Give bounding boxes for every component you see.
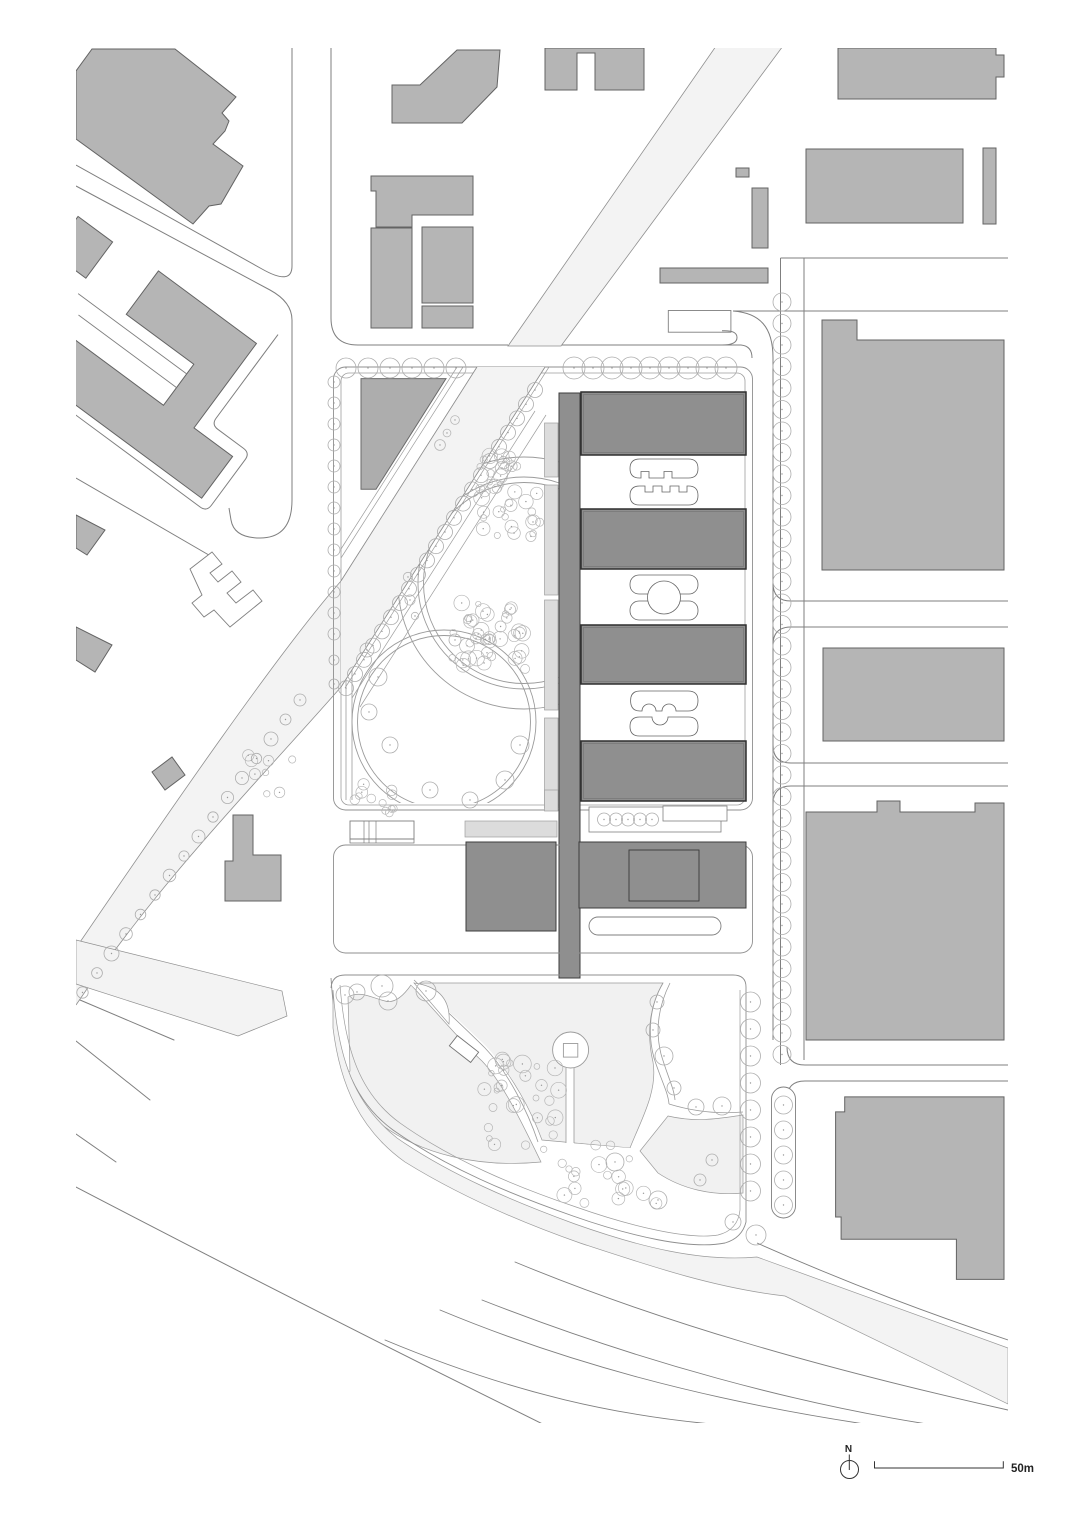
svg-text:N: N <box>845 1444 852 1455</box>
svg-text:50m: 50m <box>1011 1463 1034 1475</box>
